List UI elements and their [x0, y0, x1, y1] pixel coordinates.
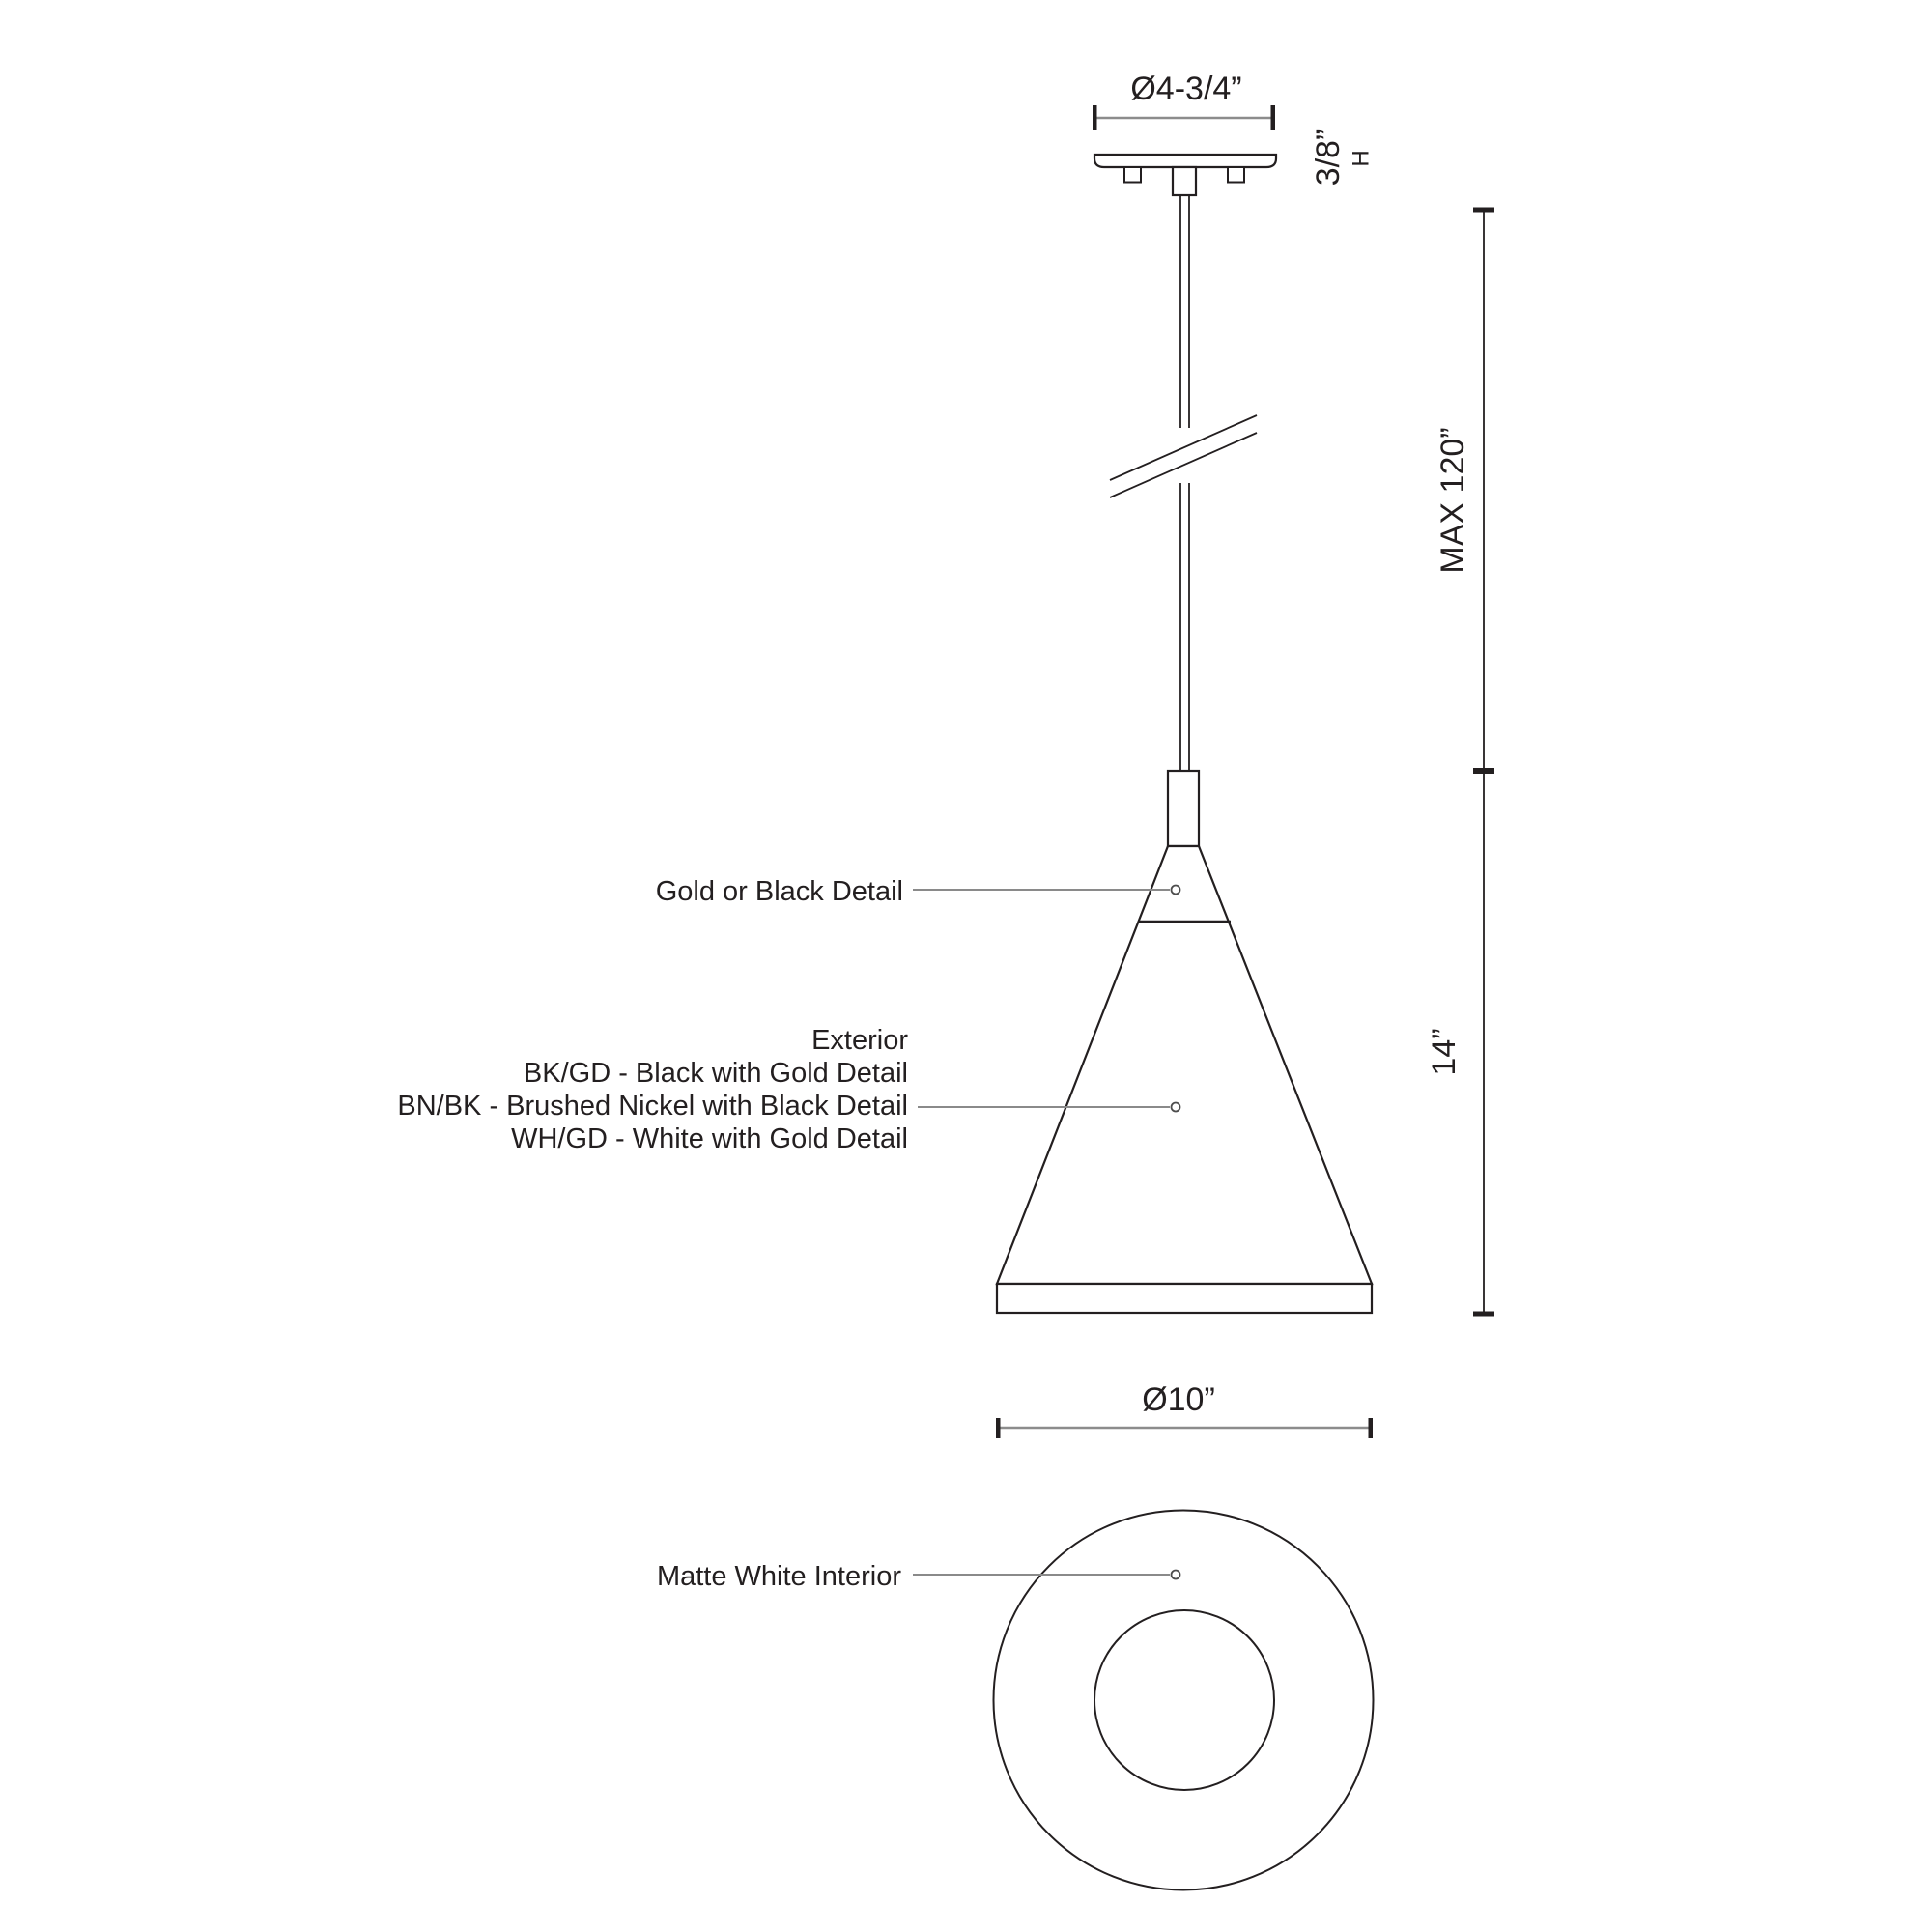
detail-leader-dot [1172, 886, 1180, 895]
finish-option-bkgd-label: BK/GD - Black with Gold Detail [524, 1058, 908, 1089]
shade-dim-left-tick [996, 1418, 1001, 1438]
vertical-dim-top-tick [1473, 208, 1494, 213]
canopy-stem [1173, 167, 1196, 195]
pendant-shade-front-view [997, 771, 1372, 1313]
cone-shade-body [997, 846, 1372, 1284]
finish-option-whgd-label: WH/GD - White with Gold Detail [511, 1123, 908, 1154]
spec-sheet-page: Ø4-3/4” 3/8” H MAX 120” 14” [0, 0, 1932, 1932]
shade-diameter-dimension: Ø10” [996, 1381, 1373, 1438]
socket-holder [1168, 771, 1199, 846]
bottom-view-inner-circle [1094, 1610, 1274, 1790]
canopy-height-axis-text: H [1349, 150, 1375, 166]
max-suspension-dim-text: MAX 120” [1435, 427, 1471, 573]
canopy-right-screw-tab [1228, 167, 1244, 183]
canopy-dim-right-tick [1271, 105, 1276, 130]
detail-label: Gold or Black Detail [656, 876, 903, 907]
shade-dim-right-tick [1369, 1418, 1374, 1438]
exterior-title-label: Exterior [811, 1025, 908, 1056]
canopy-height-dim-text: 3/8” [1310, 129, 1347, 186]
detail-callout: Gold or Black Detail [656, 876, 1180, 907]
vertical-dimension: MAX 120” 14” [1426, 208, 1494, 1317]
canopy-left-screw-tab [1124, 167, 1141, 183]
canopy-dim-left-tick [1093, 105, 1097, 130]
finish-option-bnbk-label: BN/BK - Brushed Nickel with Black Detail [397, 1091, 908, 1122]
vertical-dim-middle-tick [1473, 768, 1494, 774]
rod-break-line-lower [1110, 433, 1257, 497]
shade-diameter-dim-text: Ø10” [1142, 1381, 1215, 1418]
shade-bottom-view [994, 1511, 1374, 1890]
canopy-plate [1094, 155, 1276, 167]
interior-leader-dot [1172, 1571, 1180, 1579]
exterior-leader-dot [1172, 1103, 1180, 1112]
pendant-technical-drawing: Ø4-3/4” 3/8” H MAX 120” 14” [0, 0, 1932, 1932]
canopy-diameter-dimension: Ø4-3/4” [1093, 71, 1275, 130]
shade-base-rim [997, 1284, 1372, 1313]
vertical-dim-bottom-tick [1473, 1312, 1494, 1317]
interior-label: Matte White Interior [657, 1561, 901, 1592]
suspension-rod [1110, 195, 1257, 771]
canopy-diameter-dim-text: Ø4-3/4” [1130, 71, 1241, 107]
shade-height-dim-text: 14” [1426, 1028, 1463, 1075]
ceiling-canopy: 3/8” H [1094, 129, 1375, 195]
rod-break-line-upper [1110, 415, 1257, 480]
